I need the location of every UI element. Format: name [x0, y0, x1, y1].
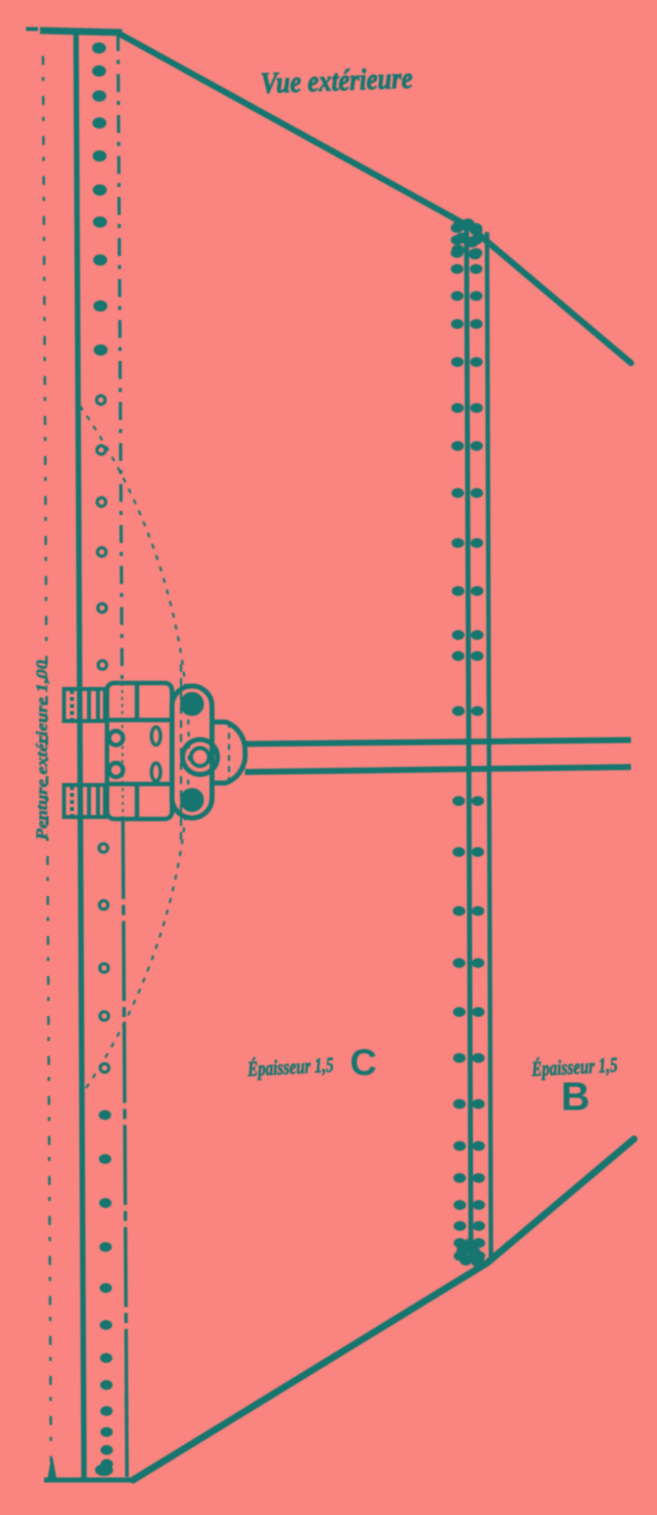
svg-text:Penture extérieure 1,00: Penture extérieure 1,00: [34, 660, 51, 841]
svg-text:C: C: [350, 1042, 377, 1083]
svg-text:Vue extérieure: Vue extérieure: [260, 62, 413, 100]
svg-text:B: B: [561, 1075, 590, 1119]
svg-text:Épaisseur 1,5: Épaisseur 1,5: [246, 1053, 334, 1082]
